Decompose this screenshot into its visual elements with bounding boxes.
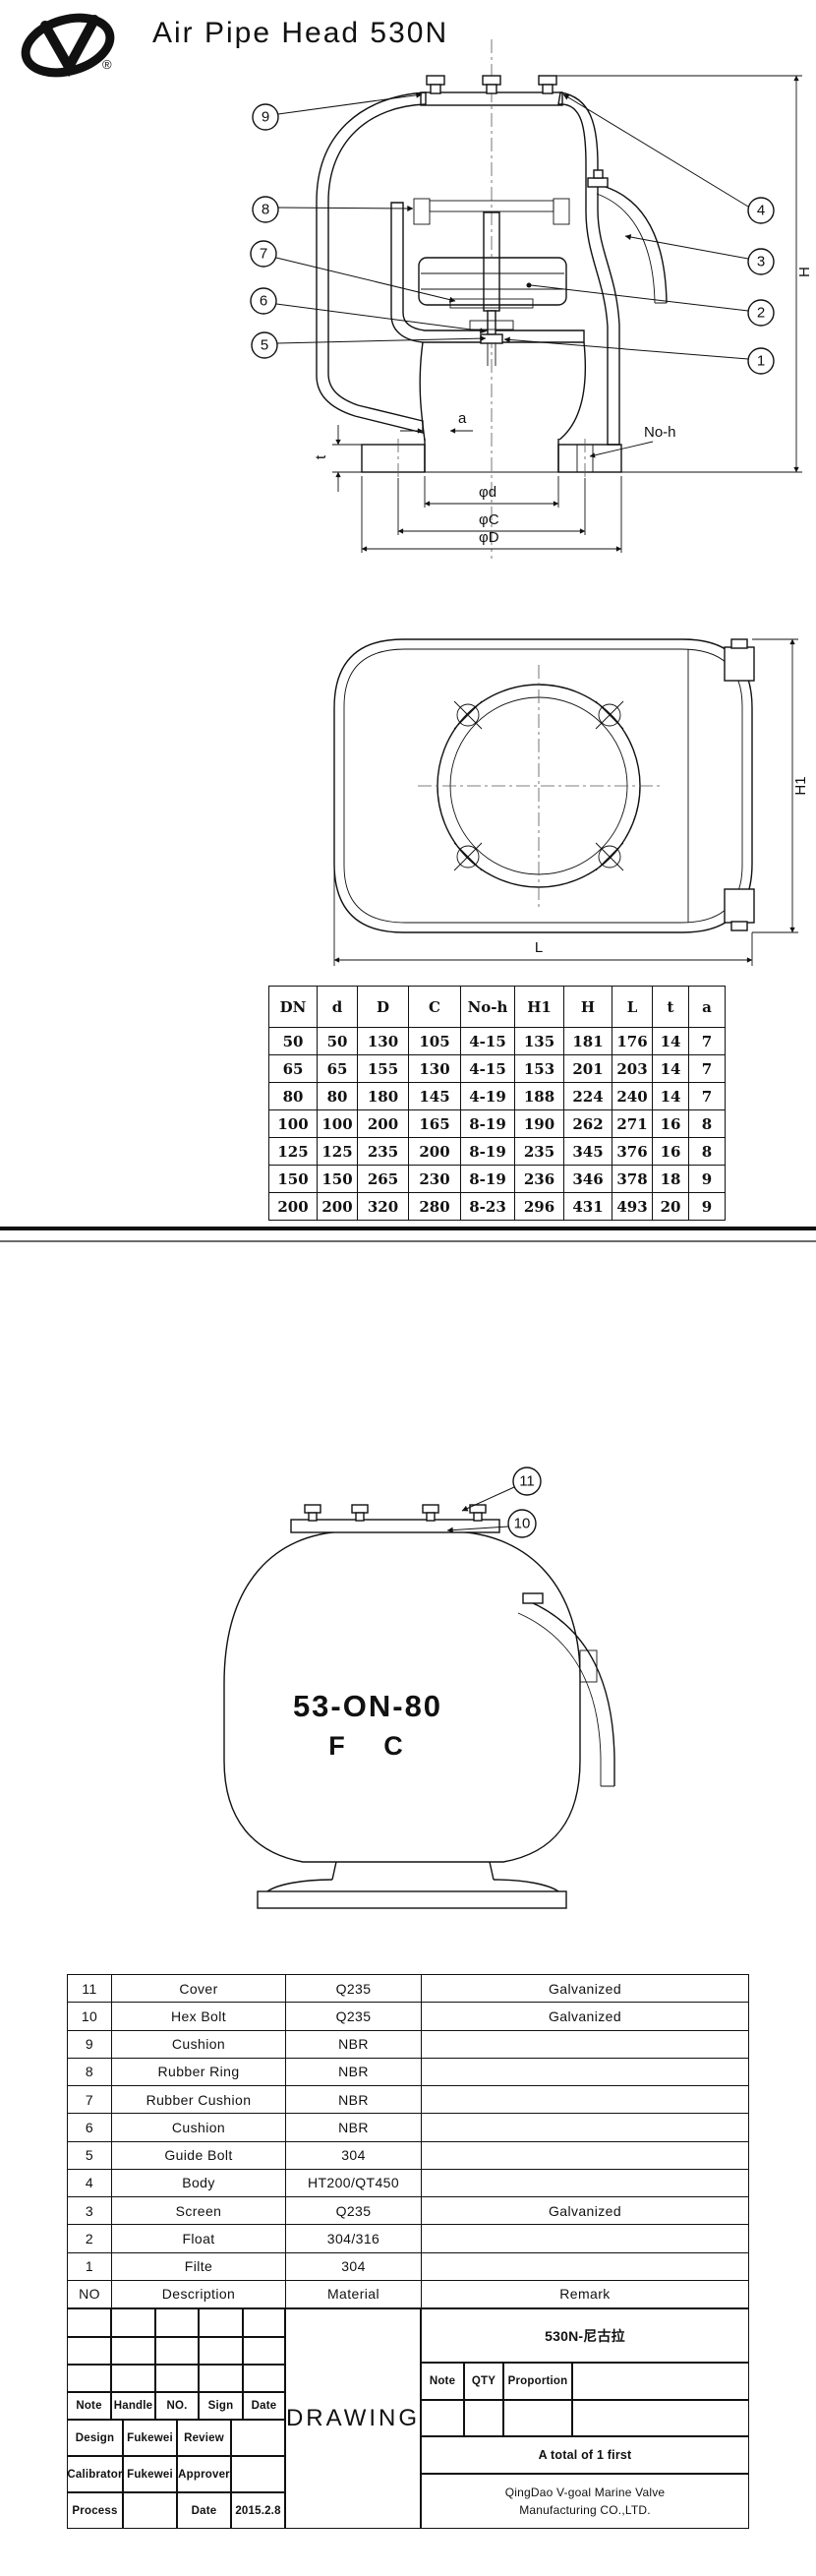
fig1-cross-section: 9 8 7 6 5 4 3 2 1 bbox=[251, 39, 813, 559]
dims-header-cell: C bbox=[409, 987, 461, 1028]
parts-row: 9CushionNBR bbox=[68, 2031, 748, 2059]
approver-label: Approver bbox=[177, 2456, 231, 2492]
note-col-header: Note bbox=[421, 2363, 464, 2400]
dims-cell: 271 bbox=[612, 1110, 653, 1138]
empty-cell bbox=[199, 2308, 243, 2337]
parts-row: 2Float304/316 bbox=[68, 2225, 748, 2252]
dims-cell: 105 bbox=[409, 1028, 461, 1055]
dims-row: 1001002001658-19190262271168 bbox=[269, 1110, 726, 1138]
dims-cell: 190 bbox=[515, 1110, 564, 1138]
dim-t-label: t bbox=[313, 454, 329, 459]
page-title: Air Pipe Head 530N bbox=[152, 17, 448, 49]
note-header: Note bbox=[67, 2392, 111, 2420]
screen-part bbox=[606, 187, 667, 303]
dims-cell: 265 bbox=[358, 1166, 409, 1193]
dims-cell: 203 bbox=[612, 1055, 653, 1083]
handle-header: Handle bbox=[111, 2392, 155, 2420]
dims-cell: 155 bbox=[358, 1055, 409, 1083]
dims-cell: 100 bbox=[318, 1110, 358, 1138]
empty-cell bbox=[572, 2400, 749, 2436]
dims-cell: 50 bbox=[318, 1028, 358, 1055]
dims-header-cell: H bbox=[564, 987, 612, 1028]
fig1-callouts: 9 8 7 6 5 4 3 2 1 bbox=[251, 104, 774, 374]
parts-cell: 304/316 bbox=[286, 2225, 422, 2251]
dims-cell: 153 bbox=[515, 1055, 564, 1083]
note-value bbox=[421, 2400, 464, 2436]
dims-cell: 125 bbox=[318, 1138, 358, 1166]
parts-cell: Rubber Ring bbox=[112, 2059, 286, 2085]
empty-cell bbox=[155, 2308, 199, 2337]
dims-cell: 65 bbox=[269, 1055, 318, 1083]
parts-cell: Screen bbox=[112, 2197, 286, 2224]
dims-cell: 320 bbox=[358, 1193, 409, 1221]
parts-cell: Filte bbox=[112, 2253, 286, 2280]
dims-cell: 200 bbox=[409, 1138, 461, 1166]
parts-cell: Hex Bolt bbox=[112, 2003, 286, 2029]
parts-cell bbox=[422, 2059, 748, 2085]
company-line1: QingDao V-goal Marine Valve bbox=[505, 2484, 666, 2501]
parts-cell: 6 bbox=[68, 2114, 112, 2140]
dims-cell: 346 bbox=[564, 1166, 612, 1193]
dims-header-cell: t bbox=[653, 987, 689, 1028]
parts-cell: HT200/QT450 bbox=[286, 2170, 422, 2196]
parts-cell: 11 bbox=[68, 1975, 112, 2002]
parts-cell: NBR bbox=[286, 2059, 422, 2085]
parts-cell bbox=[422, 2225, 748, 2251]
parts-cell bbox=[422, 2142, 748, 2169]
dims-cell: 200 bbox=[269, 1193, 318, 1221]
title-block: Note Handle NO. Sign Date Design Fukewei… bbox=[67, 2308, 749, 2529]
approver-value bbox=[231, 2456, 285, 2492]
v-goal-logo: ® bbox=[20, 9, 117, 82]
empty-cell bbox=[111, 2308, 155, 2337]
parts-cell bbox=[422, 2170, 748, 2196]
callout-9: 9 bbox=[262, 109, 269, 126]
dims-cell: 188 bbox=[515, 1083, 564, 1110]
parts-cell: Cover bbox=[112, 1975, 286, 2002]
dims-row: 1251252352008-19235345376168 bbox=[269, 1138, 726, 1166]
dims-cell: 130 bbox=[358, 1028, 409, 1055]
dims-cell: 8-23 bbox=[461, 1193, 515, 1221]
dims-cell: 16 bbox=[653, 1138, 689, 1166]
dims-cell: 4-15 bbox=[461, 1028, 515, 1055]
parts-cell: 5 bbox=[68, 2142, 112, 2169]
dims-cell: 100 bbox=[269, 1110, 318, 1138]
callout-11: 11 bbox=[519, 1473, 535, 1490]
date-header: Date bbox=[243, 2392, 285, 2420]
dims-row: 50501301054-15135181176147 bbox=[269, 1028, 726, 1055]
qty-value bbox=[464, 2400, 503, 2436]
company-name: QingDao V-goal Marine Valve Manufacturin… bbox=[421, 2474, 749, 2529]
sheet-total: A total of 1 first bbox=[421, 2436, 749, 2474]
proportion-value bbox=[503, 2400, 572, 2436]
fig2-plan-view: H1 L bbox=[334, 639, 809, 966]
callout-1: 1 bbox=[757, 353, 765, 370]
sign-header: Sign bbox=[199, 2392, 243, 2420]
dims-cell: 262 bbox=[564, 1110, 612, 1138]
dims-cell: 200 bbox=[318, 1193, 358, 1221]
dim-noh-label: No-h bbox=[644, 424, 676, 441]
empty-cell bbox=[243, 2365, 285, 2392]
parts-cell: Cushion bbox=[112, 2031, 286, 2058]
dims-cell: 8-19 bbox=[461, 1110, 515, 1138]
dim-H-label: H bbox=[796, 267, 813, 277]
dims-header-cell: a bbox=[689, 987, 726, 1028]
dims-cell: 345 bbox=[564, 1138, 612, 1166]
callout-5: 5 bbox=[261, 337, 268, 354]
parts-row: 7Rubber CushionNBR bbox=[68, 2086, 748, 2114]
dims-cell: 14 bbox=[653, 1083, 689, 1110]
dim-H1-label: H1 bbox=[792, 776, 809, 795]
dims-cell: 165 bbox=[409, 1110, 461, 1138]
dims-cell: 201 bbox=[564, 1055, 612, 1083]
drawing-title: DRAWING bbox=[285, 2308, 421, 2529]
parts-cell: Description bbox=[112, 2281, 286, 2307]
design-name: Fukewei bbox=[123, 2420, 177, 2456]
empty-cell bbox=[199, 2337, 243, 2365]
empty-cell bbox=[67, 2337, 111, 2365]
callout-4: 4 bbox=[757, 203, 765, 219]
dims-row: 80801801454-19188224240147 bbox=[269, 1083, 726, 1110]
dims-cell: 150 bbox=[318, 1166, 358, 1193]
dims-cell: 8-19 bbox=[461, 1138, 515, 1166]
parts-cell: 10 bbox=[68, 2003, 112, 2029]
company-line2: Manufacturing CO.,LTD. bbox=[519, 2501, 651, 2519]
callout-6: 6 bbox=[260, 293, 267, 310]
parts-cell: 4 bbox=[68, 2170, 112, 2196]
parts-cell: NO bbox=[68, 2281, 112, 2307]
dims-cell: 8-19 bbox=[461, 1166, 515, 1193]
dims-row: 2002003202808-23296431493209 bbox=[269, 1193, 726, 1221]
parts-cell: Material bbox=[286, 2281, 422, 2307]
parts-cell: 7 bbox=[68, 2086, 112, 2113]
parts-cell bbox=[422, 2031, 748, 2058]
parts-row: 8Rubber RingNBR bbox=[68, 2059, 748, 2086]
parts-list-table: 11CoverQ235Galvanized10Hex BoltQ235Galva… bbox=[67, 1974, 749, 2308]
fig3-elevation: 11 10 53-ON-80 F C bbox=[224, 1468, 614, 1908]
parts-cell: Q235 bbox=[286, 2197, 422, 2224]
dims-cell: 130 bbox=[409, 1055, 461, 1083]
dims-cell: 65 bbox=[318, 1055, 358, 1083]
parts-cell: Q235 bbox=[286, 2003, 422, 2029]
dims-cell: 16 bbox=[653, 1110, 689, 1138]
dims-cell: 125 bbox=[269, 1138, 318, 1166]
dims-row: 65651551304-15153201203147 bbox=[269, 1055, 726, 1083]
type-letters: F C bbox=[328, 1731, 419, 1761]
dims-row: 1501502652308-19236346378189 bbox=[269, 1166, 726, 1193]
parts-row: 11CoverQ235Galvanized bbox=[68, 1975, 748, 2003]
dims-cell: 280 bbox=[409, 1193, 461, 1221]
calibrator-name: Fukewei bbox=[123, 2456, 177, 2492]
parts-cell: 304 bbox=[286, 2142, 422, 2169]
parts-cell: 8 bbox=[68, 2059, 112, 2085]
dims-cell: 376 bbox=[612, 1138, 653, 1166]
dims-header-cell: L bbox=[612, 987, 653, 1028]
registered-mark: ® bbox=[102, 57, 112, 72]
dims-cell: 176 bbox=[612, 1028, 653, 1055]
dims-cell: 4-15 bbox=[461, 1055, 515, 1083]
parts-cell bbox=[422, 2114, 748, 2140]
dims-cell: 145 bbox=[409, 1083, 461, 1110]
empty-cell bbox=[199, 2365, 243, 2392]
dims-cell: 431 bbox=[564, 1193, 612, 1221]
dims-header-cell: H1 bbox=[515, 987, 564, 1028]
dims-cell: 80 bbox=[269, 1083, 318, 1110]
dims-cell: 7 bbox=[689, 1028, 726, 1055]
dims-cell: 378 bbox=[612, 1166, 653, 1193]
dims-cell: 20 bbox=[653, 1193, 689, 1221]
drawing-sheet: ® Air Pipe Head 530N bbox=[0, 0, 816, 2576]
dims-cell: 230 bbox=[409, 1166, 461, 1193]
parts-cell: Cushion bbox=[112, 2114, 286, 2140]
dims-cell: 14 bbox=[653, 1028, 689, 1055]
callout-3: 3 bbox=[757, 254, 765, 270]
parts-cell bbox=[422, 2086, 748, 2113]
dim-phiD-label: φD bbox=[479, 529, 499, 546]
dims-header-cell: DN bbox=[269, 987, 318, 1028]
dims-cell: 9 bbox=[689, 1193, 726, 1221]
dims-header-cell: d bbox=[318, 987, 358, 1028]
dim-phid-label: φd bbox=[479, 484, 496, 501]
parts-row: 5Guide Bolt304 bbox=[68, 2142, 748, 2170]
dims-cell: 236 bbox=[515, 1166, 564, 1193]
dims-header-cell: No-h bbox=[461, 987, 515, 1028]
callout-10: 10 bbox=[514, 1516, 531, 1532]
parts-cell: Float bbox=[112, 2225, 286, 2251]
parts-cell: Remark bbox=[422, 2281, 748, 2307]
parts-cell: Galvanized bbox=[422, 2003, 748, 2029]
dim-L-label: L bbox=[535, 939, 543, 956]
parts-cell: Galvanized bbox=[422, 2197, 748, 2224]
dims-cell: 80 bbox=[318, 1083, 358, 1110]
dims-cell: 181 bbox=[564, 1028, 612, 1055]
callout-7: 7 bbox=[260, 246, 267, 263]
callout-2: 2 bbox=[757, 305, 765, 322]
parts-cell: 9 bbox=[68, 2031, 112, 2058]
parts-cell: 2 bbox=[68, 2225, 112, 2251]
qty-col-header: QTY bbox=[464, 2363, 503, 2400]
dims-cell: 235 bbox=[358, 1138, 409, 1166]
parts-cell: 304 bbox=[286, 2253, 422, 2280]
dim-a-label: a bbox=[458, 410, 467, 427]
process-name bbox=[123, 2492, 177, 2529]
dims-cell: 50 bbox=[269, 1028, 318, 1055]
no-header: NO. bbox=[155, 2392, 199, 2420]
date-label: Date bbox=[177, 2492, 231, 2529]
review-label: Review bbox=[177, 2420, 231, 2456]
parts-cell: NBR bbox=[286, 2031, 422, 2058]
dims-cell: 8 bbox=[689, 1110, 726, 1138]
empty-cell bbox=[67, 2308, 111, 2337]
empty-cell bbox=[155, 2337, 199, 2365]
parts-row: NODescriptionMaterialRemark bbox=[68, 2281, 748, 2307]
date-value: 2015.2.8 bbox=[231, 2492, 285, 2529]
review-value bbox=[231, 2420, 285, 2456]
dims-cell: 296 bbox=[515, 1193, 564, 1221]
dims-header-cell: D bbox=[358, 987, 409, 1028]
empty-cell bbox=[243, 2337, 285, 2365]
parts-cell: Rubber Cushion bbox=[112, 2086, 286, 2113]
dims-cell: 235 bbox=[515, 1138, 564, 1166]
parts-cell: NBR bbox=[286, 2086, 422, 2113]
dim-phiC-label: φC bbox=[479, 511, 499, 528]
parts-row: 4BodyHT200/QT450 bbox=[68, 2170, 748, 2197]
dims-cell: 7 bbox=[689, 1083, 726, 1110]
dims-cell: 200 bbox=[358, 1110, 409, 1138]
parts-cell: 1 bbox=[68, 2253, 112, 2280]
parts-cell: Galvanized bbox=[422, 1975, 748, 2002]
parts-cell: Body bbox=[112, 2170, 286, 2196]
model-cn: 530N-尼古拉 bbox=[421, 2308, 749, 2363]
parts-row: 1Filte304 bbox=[68, 2253, 748, 2281]
section-divider-thick bbox=[0, 1227, 816, 1230]
parts-cell: NBR bbox=[286, 2114, 422, 2140]
design-label: Design bbox=[67, 2420, 123, 2456]
parts-row: 10Hex BoltQ235Galvanized bbox=[68, 2003, 748, 2030]
calibrator-label: Calibrator bbox=[67, 2456, 123, 2492]
dims-cell: 8 bbox=[689, 1138, 726, 1166]
parts-cell: Guide Bolt bbox=[112, 2142, 286, 2169]
empty-cell bbox=[111, 2365, 155, 2392]
empty-cell bbox=[155, 2365, 199, 2392]
process-label: Process bbox=[67, 2492, 123, 2529]
callout-8: 8 bbox=[262, 202, 269, 218]
parts-row: 6CushionNBR bbox=[68, 2114, 748, 2141]
parts-row: 3ScreenQ235Galvanized bbox=[68, 2197, 748, 2225]
empty-cell bbox=[67, 2365, 111, 2392]
dims-cell: 150 bbox=[269, 1166, 318, 1193]
dims-cell: 224 bbox=[564, 1083, 612, 1110]
parts-cell: Q235 bbox=[286, 1975, 422, 2002]
dims-cell: 9 bbox=[689, 1166, 726, 1193]
dimensions-table: DNdDCNo-hH1HLta 50501301054-151351811761… bbox=[268, 986, 726, 1221]
empty-cell bbox=[572, 2363, 749, 2400]
dims-cell: 180 bbox=[358, 1083, 409, 1110]
dims-cell: 493 bbox=[612, 1193, 653, 1221]
dims-cell: 14 bbox=[653, 1055, 689, 1083]
parts-cell bbox=[422, 2253, 748, 2280]
empty-cell bbox=[111, 2337, 155, 2365]
dims-cell: 4-19 bbox=[461, 1083, 515, 1110]
parts-cell: 3 bbox=[68, 2197, 112, 2224]
dims-cell: 240 bbox=[612, 1083, 653, 1110]
proportion-col-header: Proportion bbox=[503, 2363, 572, 2400]
model-text: 53-ON-80 bbox=[293, 1689, 442, 1723]
dims-cell: 18 bbox=[653, 1166, 689, 1193]
dims-cell: 135 bbox=[515, 1028, 564, 1055]
empty-cell bbox=[243, 2308, 285, 2337]
dims-cell: 7 bbox=[689, 1055, 726, 1083]
